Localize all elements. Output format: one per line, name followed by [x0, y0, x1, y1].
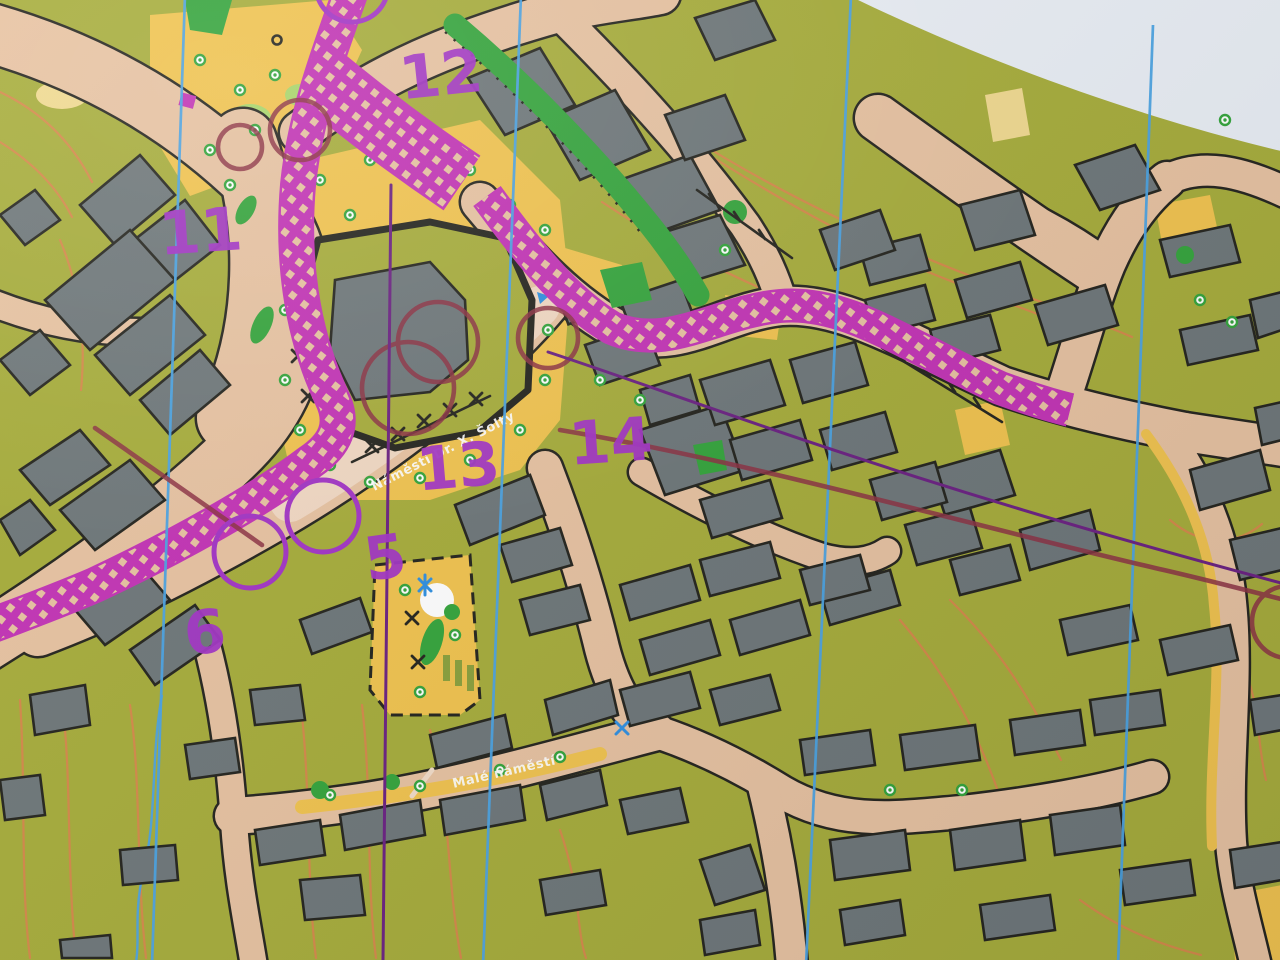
control-number-14: 14 — [567, 404, 655, 480]
orienteering-map-photo: Náměstí Dr. X. Šolty Malé náměstí 11 — [0, 0, 1280, 960]
control-number-6: 6 — [180, 596, 229, 670]
control-number-13: 13 — [414, 429, 503, 506]
control-number-12: 12 — [396, 36, 486, 114]
map-canvas: Náměstí Dr. X. Šolty Malé náměstí 11 — [0, 0, 1280, 960]
control-number-11: 11 — [157, 194, 245, 270]
